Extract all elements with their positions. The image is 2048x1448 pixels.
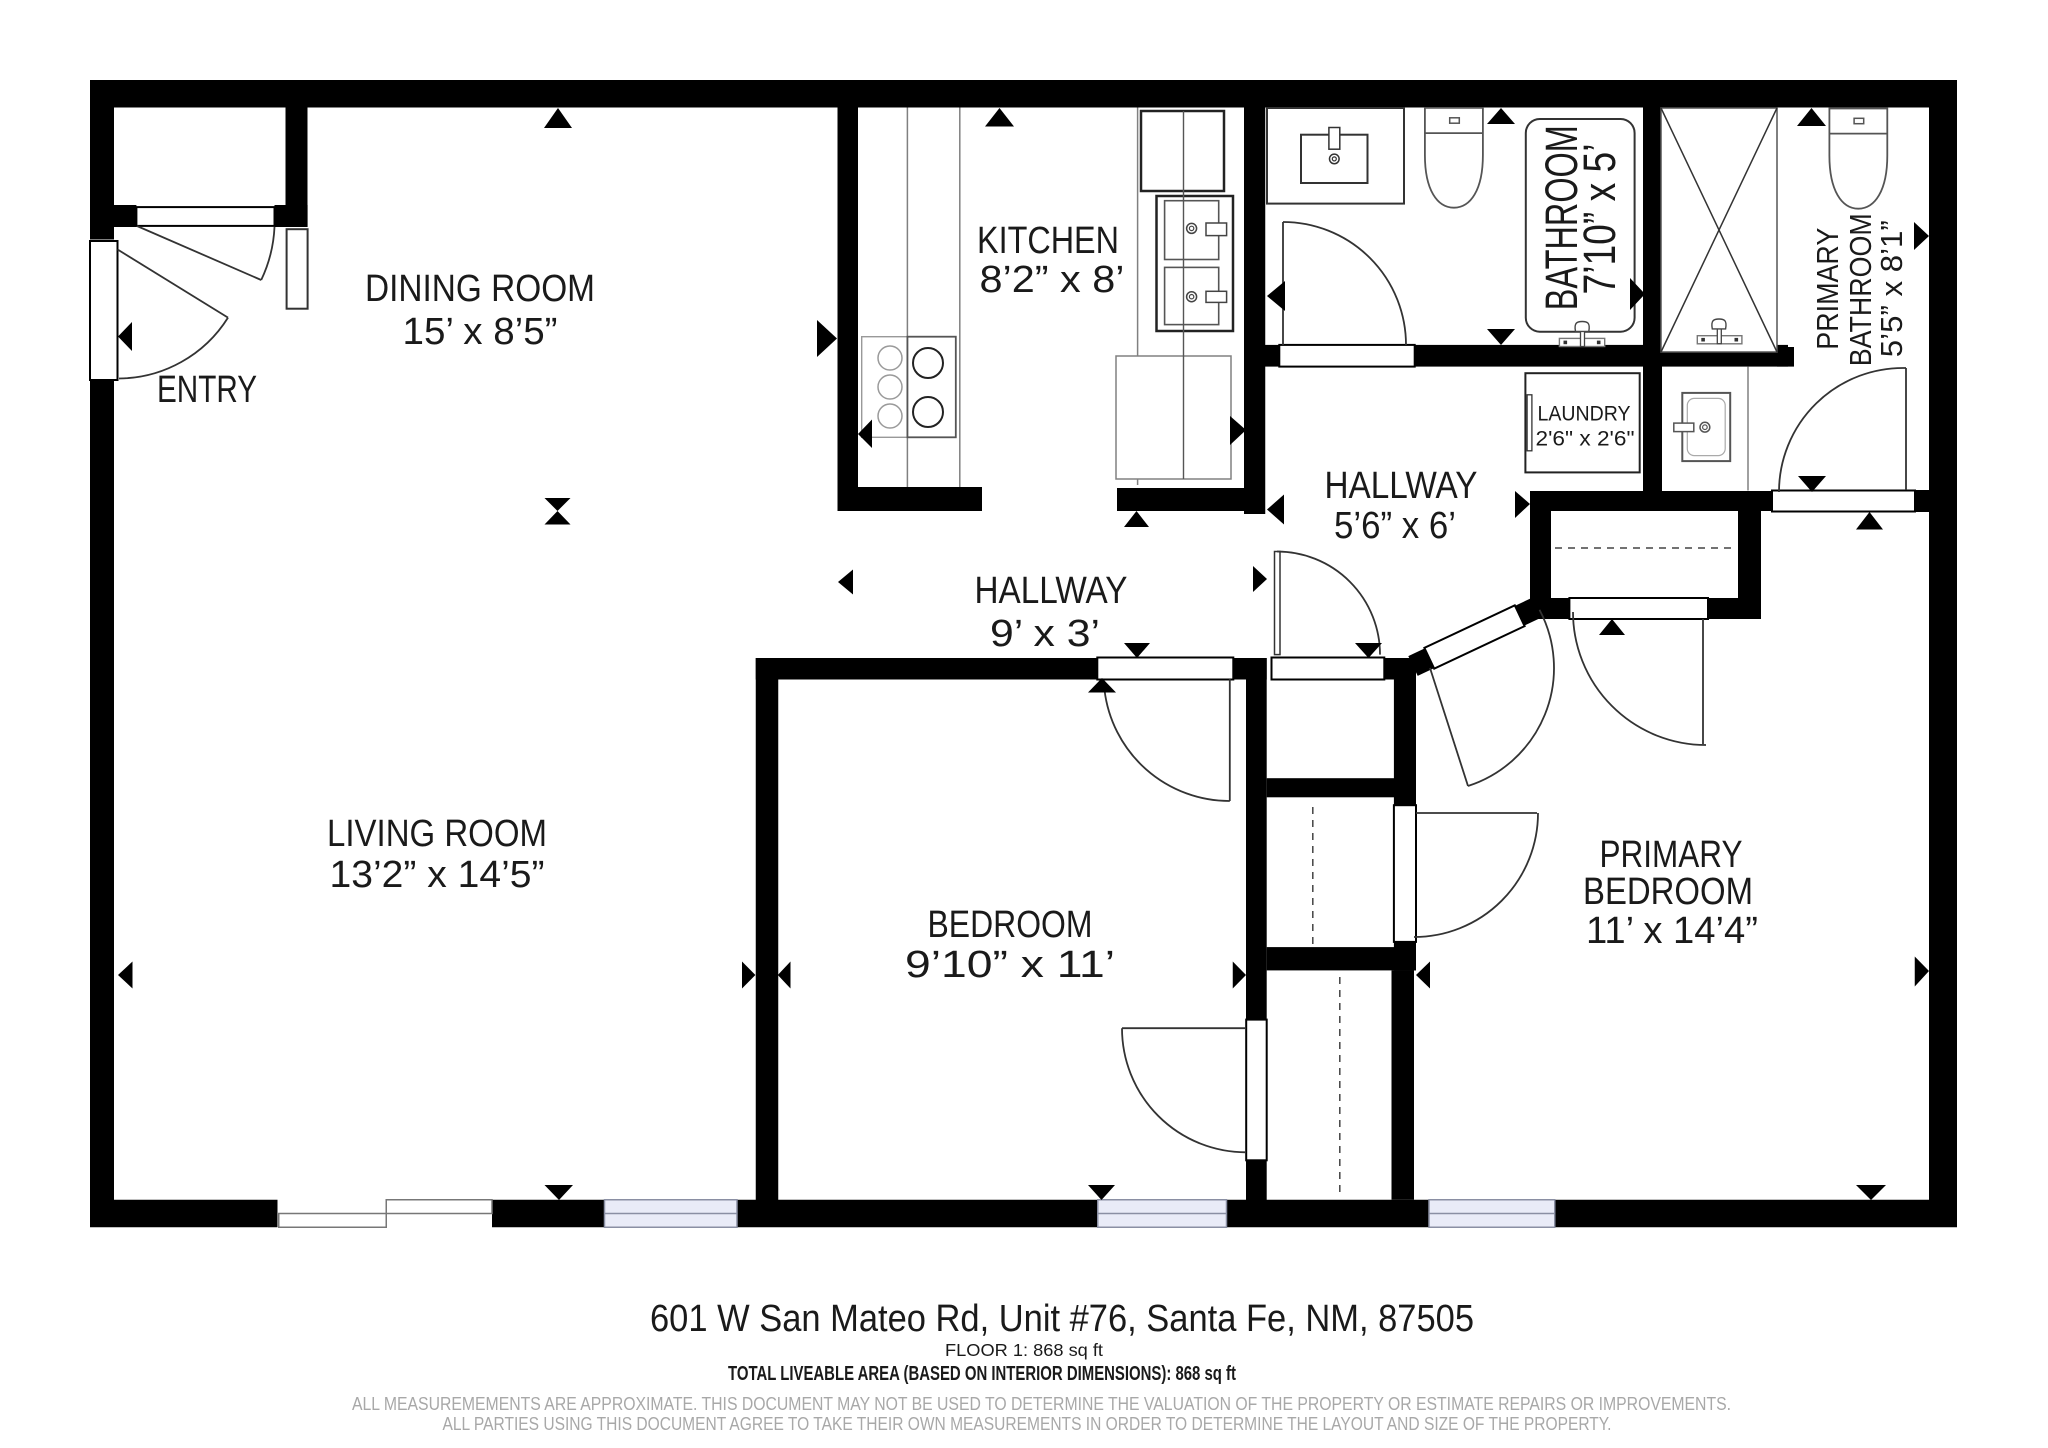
svg-text:BEDROOM: BEDROOM: [928, 904, 1093, 946]
svg-text:601 W San Mateo Rd, Unit #76,: 601 W San Mateo Rd, Unit #76, Santa Fe, …: [650, 1298, 1474, 1340]
svg-text:5’5” x 8’1”: 5’5” x 8’1”: [1874, 220, 1909, 357]
svg-text:HALLWAY: HALLWAY: [1325, 465, 1478, 507]
svg-text:TOTAL LIVEABLE AREA (BASED ON: TOTAL LIVEABLE AREA (BASED ON INTERIOR D…: [728, 1363, 1236, 1385]
svg-text:2'6" x 2'6": 2'6" x 2'6": [1536, 428, 1635, 451]
svg-text:HALLWAY: HALLWAY: [975, 570, 1128, 612]
svg-text:5’6” x 6’: 5’6” x 6’: [1334, 505, 1456, 547]
svg-text:PRIMARY: PRIMARY: [1600, 834, 1743, 876]
svg-text:8’2” x 8’: 8’2” x 8’: [980, 259, 1125, 301]
svg-text:13’2” x 14’5”: 13’2” x 14’5”: [330, 854, 545, 896]
svg-text:9’ x 3’: 9’ x 3’: [990, 613, 1100, 655]
svg-text:KITCHEN: KITCHEN: [977, 220, 1119, 262]
svg-text:BEDROOM: BEDROOM: [1583, 871, 1753, 913]
svg-text:FLOOR 1: 868 sq ft: FLOOR 1: 868 sq ft: [945, 1340, 1103, 1360]
svg-text:PRIMARY: PRIMARY: [1810, 228, 1845, 350]
svg-text:ALL MEASUREMEMENTS ARE APPROXI: ALL MEASUREMEMENTS ARE APPROXIMATE. THIS…: [352, 1393, 1731, 1414]
svg-text:BATHROOM: BATHROOM: [1843, 213, 1878, 366]
svg-text:11’ x 14’4”: 11’ x 14’4”: [1586, 910, 1758, 952]
svg-text:9’10” x 11’: 9’10” x 11’: [905, 944, 1115, 986]
svg-text:ENTRY: ENTRY: [157, 369, 257, 411]
svg-text:7’10” x 5’: 7’10” x 5’: [1574, 144, 1625, 295]
svg-text:15’ x 8’5”: 15’ x 8’5”: [403, 311, 558, 353]
svg-text:LIVING ROOM: LIVING ROOM: [327, 813, 547, 855]
svg-text:LAUNDRY: LAUNDRY: [1538, 403, 1631, 426]
svg-text:ALL PARTIES USING THIS DOCUMEN: ALL PARTIES USING THIS DOCUMENT AGREE TO…: [443, 1413, 1612, 1434]
svg-text:DINING ROOM: DINING ROOM: [365, 268, 595, 310]
